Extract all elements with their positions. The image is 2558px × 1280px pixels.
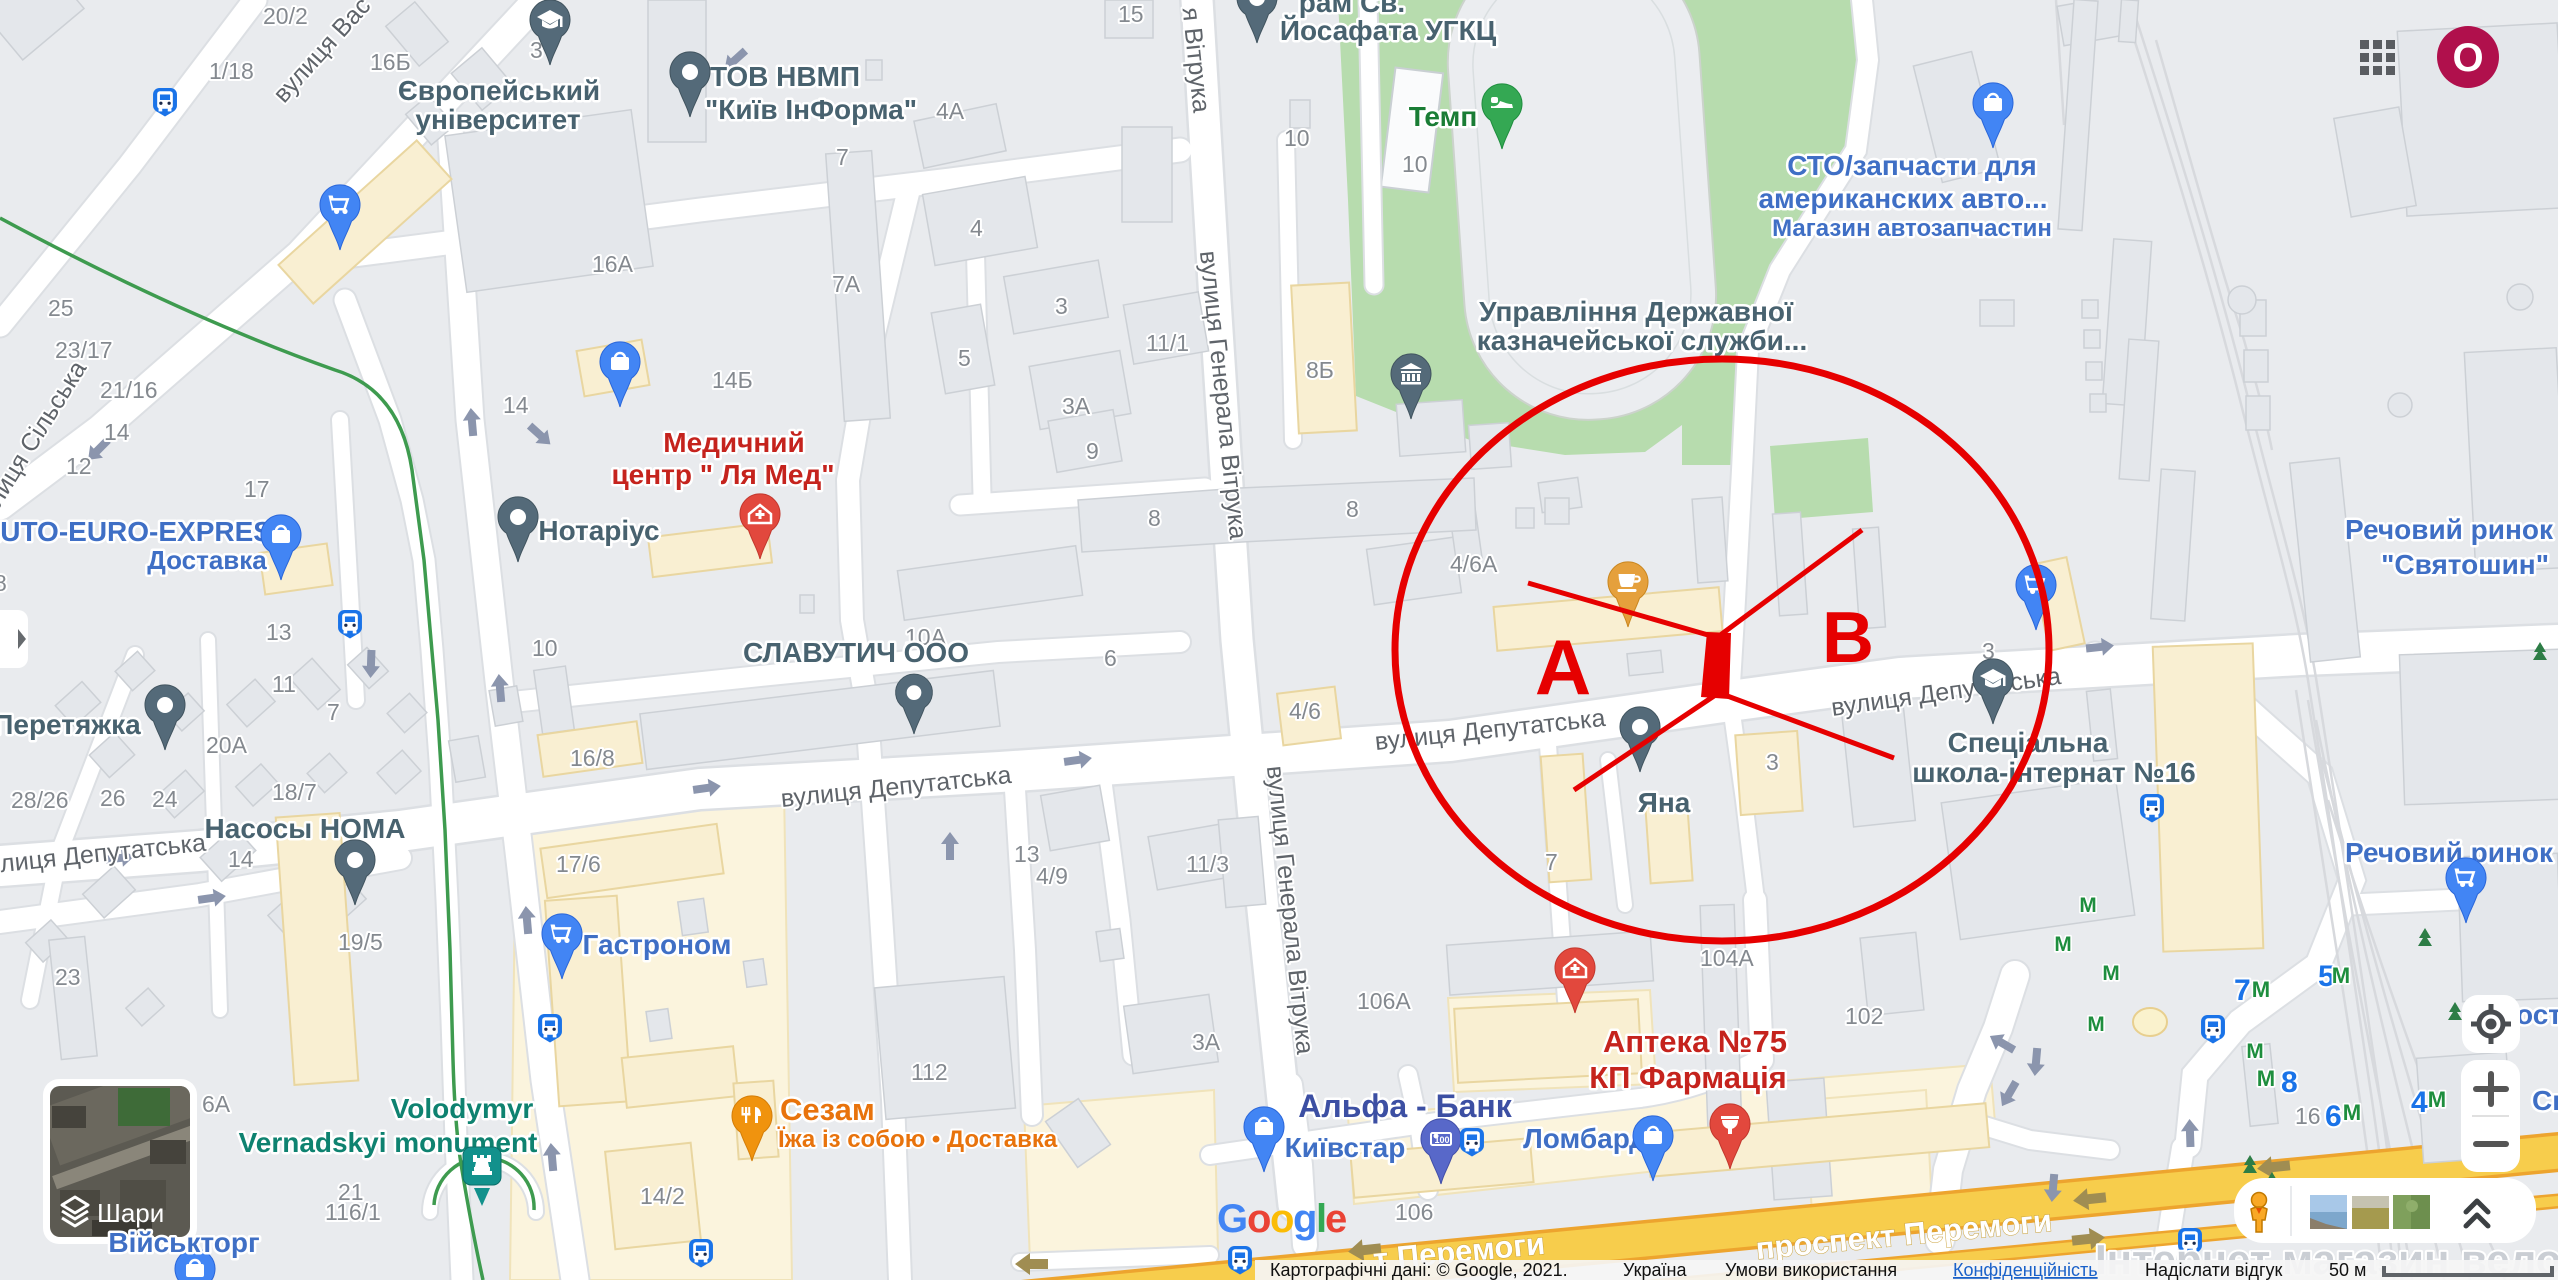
svg-text:O: O: [2452, 36, 2483, 80]
svg-text:g: g: [1293, 1197, 1317, 1241]
svg-text:Картографічні дані: © Google,: Картографічні дані: © Google, 2021.: [1270, 1260, 1568, 1280]
svg-text:7: 7: [836, 144, 849, 170]
svg-text:Насосы НОМА: Насосы НОМА: [205, 813, 406, 844]
svg-text:Доставка: Доставка: [147, 545, 267, 575]
svg-text:Умови використання: Умови використання: [1725, 1260, 1897, 1280]
svg-text:1/18: 1/18: [209, 58, 254, 84]
svg-text:6А: 6А: [202, 1091, 231, 1117]
svg-text:10: 10: [532, 635, 558, 661]
svg-text:Аптека №75: Аптека №75: [1603, 1024, 1787, 1059]
svg-text:8: 8: [1346, 496, 1359, 522]
svg-text:8: 8: [2281, 1066, 2298, 1099]
svg-text:14Б: 14Б: [712, 367, 753, 393]
svg-text:Альфа - Банк: Альфа - Банк: [1298, 1088, 1512, 1124]
svg-text:В: В: [1822, 598, 1874, 678]
svg-text:24: 24: [152, 786, 178, 812]
svg-text:4: 4: [2411, 1086, 2428, 1119]
svg-text:16А: 16А: [592, 251, 634, 277]
svg-text:116/1: 116/1: [325, 1199, 381, 1225]
svg-text:12: 12: [66, 453, 92, 479]
svg-text:Св: Св: [2532, 1085, 2558, 1116]
svg-text:20/2: 20/2: [263, 3, 308, 29]
svg-text:11/1: 11/1: [1146, 330, 1189, 356]
svg-text:Volodymyr: Volodymyr: [391, 1093, 534, 1124]
svg-text:e: e: [1325, 1197, 1347, 1241]
svg-text:5: 5: [958, 345, 971, 371]
svg-text:23/17: 23/17: [55, 337, 113, 363]
svg-text:7: 7: [327, 699, 340, 725]
svg-text:4/9: 4/9: [1036, 863, 1068, 889]
svg-text:50 м: 50 м: [2329, 1260, 2366, 1280]
svg-text:G: G: [1217, 1197, 1248, 1241]
svg-text:112: 112: [911, 1059, 948, 1085]
svg-text:3: 3: [1766, 749, 1779, 775]
svg-text:6: 6: [1104, 645, 1117, 671]
svg-text:"Святошин": "Святошин": [2381, 549, 2549, 580]
svg-text:Медичний: Медичний: [663, 427, 804, 458]
svg-text:7: 7: [1545, 849, 1558, 875]
svg-text:Нотаріус: Нотаріус: [538, 515, 659, 546]
svg-text:7: 7: [2234, 974, 2251, 1007]
svg-text:Речовий ринок: Речовий ринок: [2345, 837, 2554, 868]
svg-text:ТОВ НВМП: ТОВ НВМП: [710, 61, 860, 92]
svg-text:Військторг: Військторг: [108, 1227, 259, 1258]
svg-text:4/6А: 4/6А: [1450, 551, 1498, 577]
svg-text:14: 14: [503, 392, 529, 418]
svg-text:20А: 20А: [206, 732, 248, 758]
svg-text:13: 13: [266, 619, 292, 645]
svg-text:"Київ ІнФорма": "Київ ІнФорма": [705, 94, 917, 125]
svg-text:102: 102: [1845, 1003, 1883, 1029]
svg-text:25: 25: [48, 295, 74, 321]
svg-text:16/8: 16/8: [570, 745, 615, 771]
svg-text:4: 4: [970, 215, 983, 241]
svg-text:Управління Державної: Управління Державної: [1479, 296, 1794, 327]
svg-text:Конфіденційність: Конфіденційність: [1953, 1260, 2098, 1280]
svg-text:Йосафата УГКЦ: Йосафата УГКЦ: [1280, 14, 1497, 46]
svg-text:Київстар: Київстар: [1285, 1132, 1406, 1163]
svg-text:8: 8: [1148, 505, 1161, 531]
svg-text:19/5: 19/5: [338, 929, 383, 955]
svg-text:8: 8: [0, 570, 7, 596]
svg-text:Україна: Україна: [1623, 1260, 1687, 1280]
svg-text:o: o: [1247, 1197, 1271, 1241]
svg-text:Гастроном: Гастроном: [583, 929, 732, 960]
svg-text:3А: 3А: [1062, 393, 1091, 419]
svg-text:КП Фармація: КП Фармація: [1589, 1060, 1787, 1095]
svg-text:казначейської служби...: казначейської служби...: [1477, 325, 1807, 356]
svg-text:o: o: [1270, 1197, 1294, 1241]
svg-text:Ломбард: Ломбард: [1523, 1123, 1647, 1154]
svg-text:університет: університет: [415, 104, 580, 135]
svg-text:26: 26: [100, 785, 126, 811]
svg-text:106А: 106А: [1357, 988, 1411, 1014]
svg-text:3А: 3А: [1192, 1029, 1221, 1055]
svg-text:6: 6: [2325, 1100, 2342, 1133]
svg-text:8Б: 8Б: [1306, 357, 1334, 383]
svg-text:Сезам: Сезам: [780, 1092, 875, 1127]
svg-text:СТО/запчасти для: СТО/запчасти для: [1787, 150, 2037, 181]
svg-text:9: 9: [1086, 438, 1099, 464]
svg-text:28/26: 28/26: [11, 787, 69, 813]
svg-text:оста: оста: [2516, 999, 2558, 1030]
svg-text:17/6: 17/6: [556, 851, 601, 877]
svg-text:14: 14: [104, 419, 130, 445]
svg-text:Темп: Темп: [1409, 101, 1478, 132]
svg-text:Європейський: Європейський: [398, 75, 600, 106]
svg-text:4А: 4А: [936, 98, 965, 124]
svg-text:Магазин автозапчастин: Магазин автозапчастин: [1772, 215, 2052, 242]
svg-text:Шари: Шари: [97, 1198, 164, 1228]
svg-text:14: 14: [228, 846, 254, 872]
svg-text:18/7: 18/7: [272, 779, 317, 805]
svg-text:11: 11: [272, 671, 296, 697]
svg-text:Перетяжка: Перетяжка: [0, 709, 141, 740]
svg-text:16Б: 16Б: [370, 49, 411, 75]
svg-text:центр " Ля Мед": центр " Ля Мед": [611, 459, 834, 490]
svg-text:А: А: [1535, 623, 1591, 711]
svg-text:AUTO-EURO-EXPRESS: AUTO-EURO-EXPRESS: [0, 516, 291, 547]
svg-text:106: 106: [1395, 1199, 1433, 1225]
svg-text:21/16: 21/16: [100, 377, 158, 403]
svg-text:СЛАВУТИЧ ООО: СЛАВУТИЧ ООО: [743, 637, 969, 668]
svg-text:17: 17: [244, 476, 270, 502]
svg-text:10: 10: [1284, 125, 1310, 151]
svg-text:11/3: 11/3: [1186, 851, 1229, 877]
svg-text:15: 15: [1118, 1, 1144, 27]
svg-text:Речовий ринок: Речовий ринок: [2345, 514, 2554, 545]
svg-text:американских авто...: американских авто...: [1758, 183, 2047, 214]
svg-text:7А: 7А: [832, 271, 861, 297]
svg-text:Їжа із собою • Доставка: Їжа із собою • Доставка: [777, 1126, 1058, 1153]
svg-text:3: 3: [1055, 293, 1068, 319]
svg-text:16: 16: [2295, 1103, 2321, 1129]
svg-text:23: 23: [55, 964, 81, 990]
svg-text:4/6: 4/6: [1289, 698, 1321, 724]
svg-text:школа-інтернат №16: школа-інтернат №16: [1912, 757, 2196, 788]
svg-text:14/2: 14/2: [640, 1183, 685, 1209]
svg-text:Надіслати відгук: Надіслати відгук: [2145, 1260, 2283, 1280]
svg-text:Яна: Яна: [1638, 787, 1691, 818]
svg-text:10: 10: [1402, 151, 1428, 177]
svg-text:104А: 104А: [1700, 945, 1754, 971]
